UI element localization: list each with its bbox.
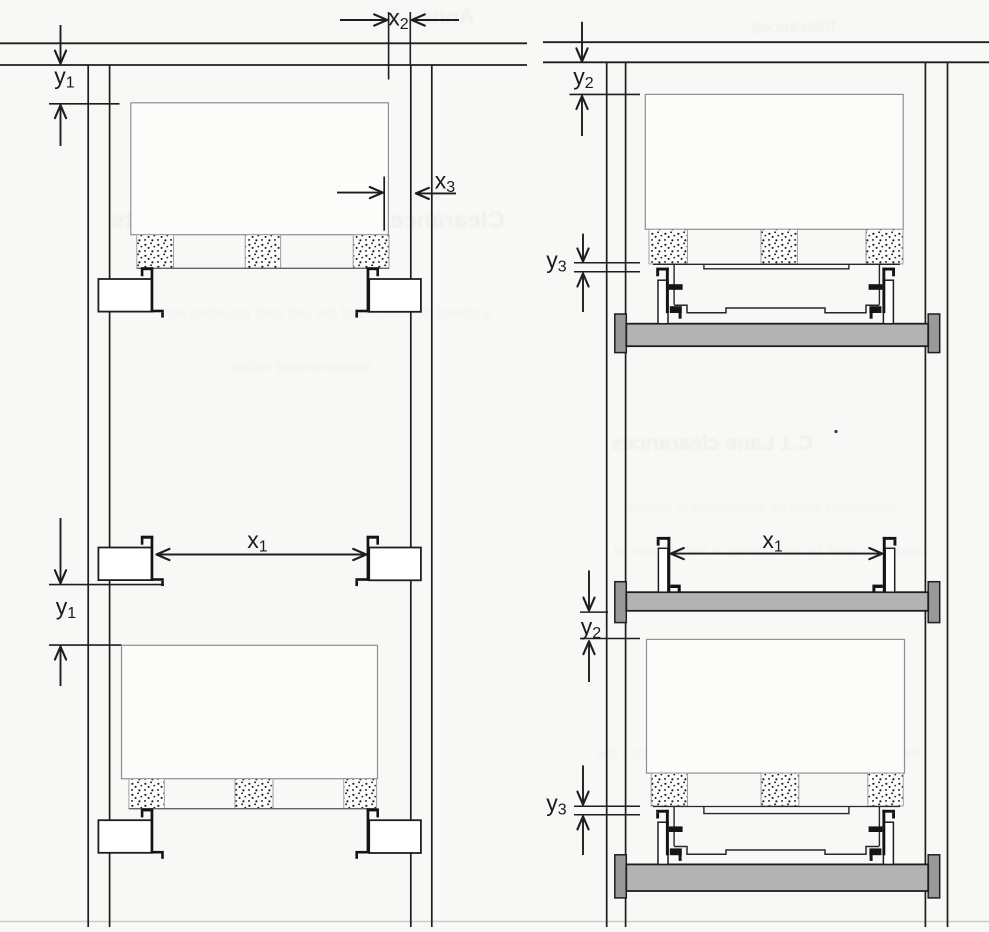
svg-text:recommended values: recommended values	[228, 359, 371, 376]
svg-text:clearances shall be considered: clearances shall be considered in relati…	[622, 499, 897, 516]
svg-text:C.1 Lane clearances: C.1 Lane clearances	[611, 432, 813, 455]
svg-text:e lateral dimensions of the un: e lateral dimensions of the unit load bo…	[169, 305, 492, 322]
svg-text:Tolerances: Tolerances	[751, 17, 838, 37]
